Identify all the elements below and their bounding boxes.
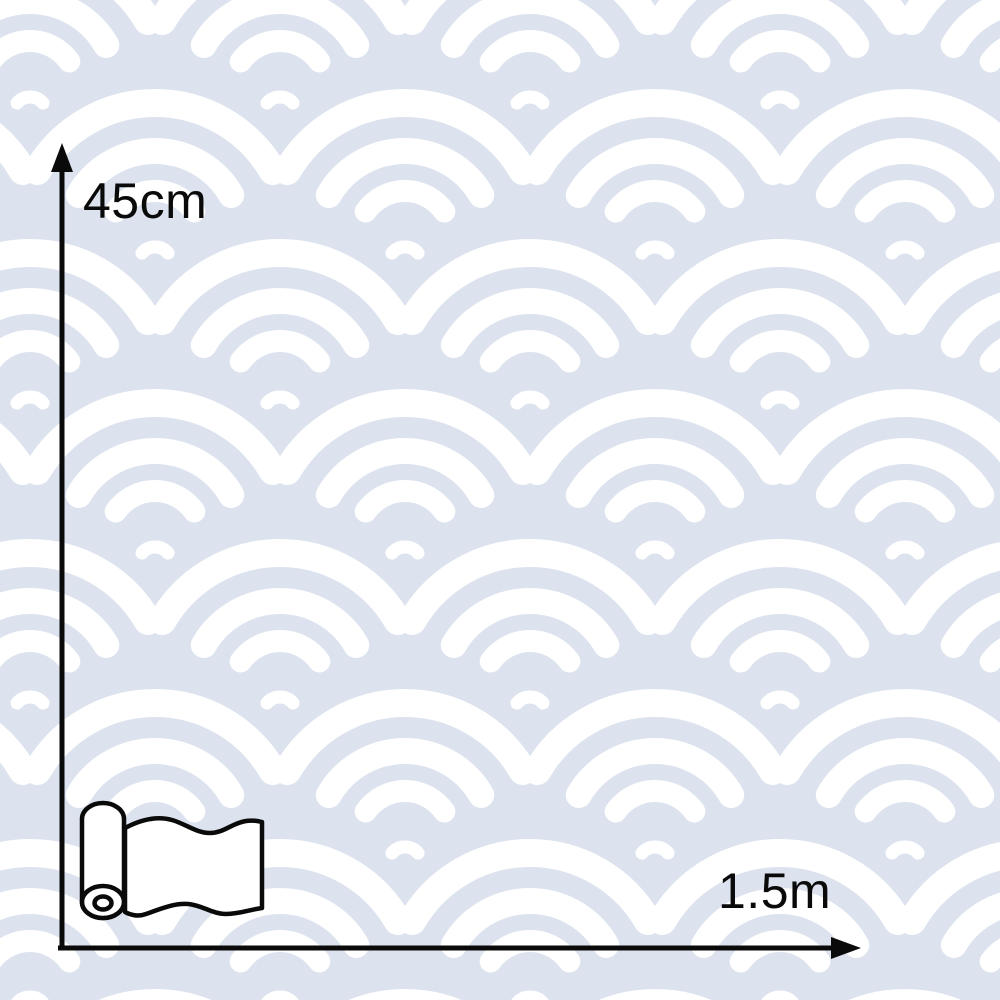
roll-sheet <box>125 818 262 915</box>
roll-core-hole <box>95 897 112 910</box>
wallpaper-swatch: 45cm 1.5m <box>0 0 1000 1000</box>
wallpaper-dimension-diagram: 45cm 1.5m <box>0 0 1000 1000</box>
height-dimension-label: 45cm <box>83 173 207 229</box>
width-dimension-label: 1.5m <box>718 863 831 919</box>
